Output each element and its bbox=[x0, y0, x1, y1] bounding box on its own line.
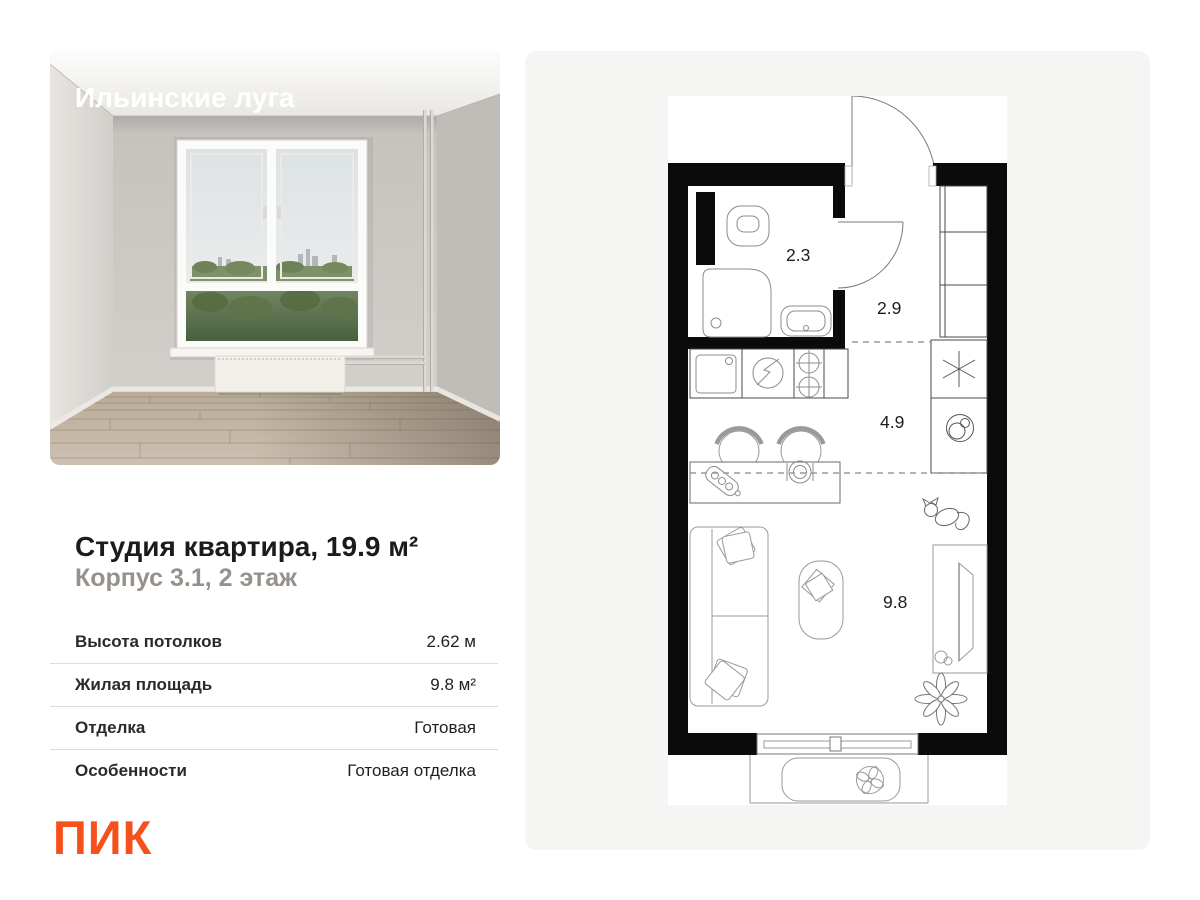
coffee-table bbox=[799, 561, 843, 639]
room-area-label: 2.3 bbox=[786, 245, 810, 265]
floorplan-drawing: 2.3 2.9 4.9 9.8 bbox=[668, 96, 1007, 805]
shower-icon bbox=[703, 269, 771, 337]
right-wall bbox=[437, 94, 500, 422]
tv-console bbox=[933, 545, 987, 673]
left-wall bbox=[50, 64, 113, 430]
spec-row: Жилая площадь 9.8 м² bbox=[50, 664, 498, 707]
spec-label: Особенности bbox=[50, 761, 187, 781]
project-photo[interactable]: Ильинские луга bbox=[50, 50, 500, 465]
spec-value: Готовая отделка bbox=[347, 761, 498, 781]
spec-label: Высота потолков bbox=[50, 632, 222, 652]
sofa bbox=[690, 526, 768, 706]
vent-shaft bbox=[696, 192, 715, 265]
spec-row: Особенности Готовая отделка bbox=[50, 750, 498, 792]
spec-row: Отделка Готовая bbox=[50, 707, 498, 750]
window-handle bbox=[277, 206, 281, 219]
room-photo-illustration: Ильинские луга bbox=[50, 50, 500, 465]
pik-logo[interactable]: ПИК bbox=[53, 810, 152, 865]
room-area-label: 9.8 bbox=[883, 592, 907, 612]
spec-label: Отделка bbox=[50, 718, 145, 738]
kitchen-sink-icon bbox=[696, 355, 736, 393]
window-handle bbox=[263, 206, 267, 219]
window bbox=[170, 137, 374, 360]
bathroom-sink-icon bbox=[781, 306, 831, 336]
listing-subtitle: Корпус 3.1, 2 этаж bbox=[75, 564, 297, 593]
floorplan-panel[interactable]: 2.3 2.9 4.9 9.8 bbox=[525, 51, 1150, 850]
listing-card: Ильинские луга Студия квартира, 19.9 м² … bbox=[0, 0, 1200, 900]
kitchen-counter bbox=[690, 349, 848, 398]
living-room-window bbox=[757, 734, 918, 754]
wood-floor bbox=[50, 392, 500, 465]
spec-table: Высота потолков 2.62 м Жилая площадь 9.8… bbox=[50, 621, 498, 792]
bar-counter bbox=[690, 461, 840, 503]
spec-label: Жилая площадь bbox=[50, 675, 212, 695]
spec-value: 9.8 м² bbox=[430, 675, 498, 695]
spec-value: 2.62 м bbox=[427, 632, 499, 652]
tv-icon bbox=[959, 563, 973, 661]
page-title: Студия квартира, 19.9 м² bbox=[75, 531, 418, 563]
toilet-icon bbox=[727, 206, 769, 246]
spec-value: Готовая bbox=[414, 718, 498, 738]
radiator bbox=[215, 356, 345, 395]
room-area-label: 2.9 bbox=[877, 298, 901, 318]
spec-row: Высота потолков 2.62 м bbox=[50, 621, 498, 664]
project-name: Ильинские луга bbox=[75, 82, 295, 113]
room-area-label: 4.9 bbox=[880, 412, 904, 432]
